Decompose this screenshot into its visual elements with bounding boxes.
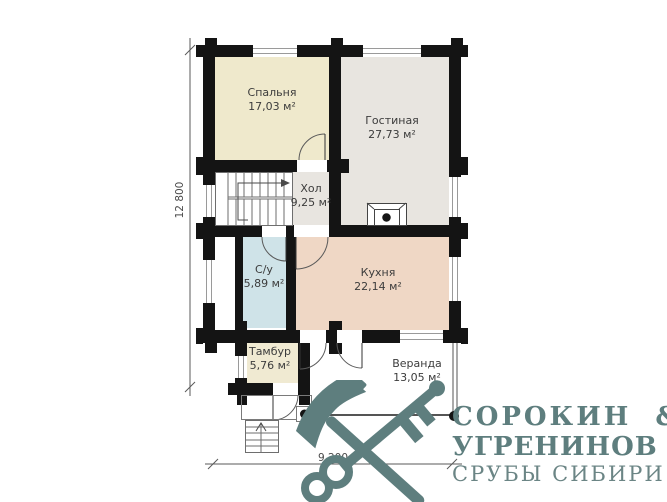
- staircase: [216, 172, 293, 226]
- logo-line2: УГРЕНИНОВ: [452, 432, 658, 462]
- label-bedroom: Спальня17,03 м²: [248, 86, 297, 114]
- logo-line3: СРУБЫ СИБИРИ: [452, 462, 665, 486]
- label-vestibule: Тамбур5,76 м²: [249, 345, 291, 373]
- floor-plan-sheet: Спальня17,03 м² Гостиная27,73 м² Хол9,25…: [0, 0, 667, 502]
- label-hall: Хол9,25 м²: [291, 182, 332, 210]
- label-living: Гостиная27,73 м²: [365, 114, 419, 142]
- axe-and-key-icon: [296, 380, 476, 502]
- label-kitchen: Кухня22,14 м²: [354, 266, 402, 294]
- stove-symbol: [367, 203, 407, 226]
- exterior-steps: [245, 421, 279, 454]
- logo-line1: СОРОКИН &: [452, 402, 667, 432]
- label-bathroom: С/у5,89 м²: [244, 263, 285, 291]
- dimension-vertical: 12 800: [174, 182, 186, 219]
